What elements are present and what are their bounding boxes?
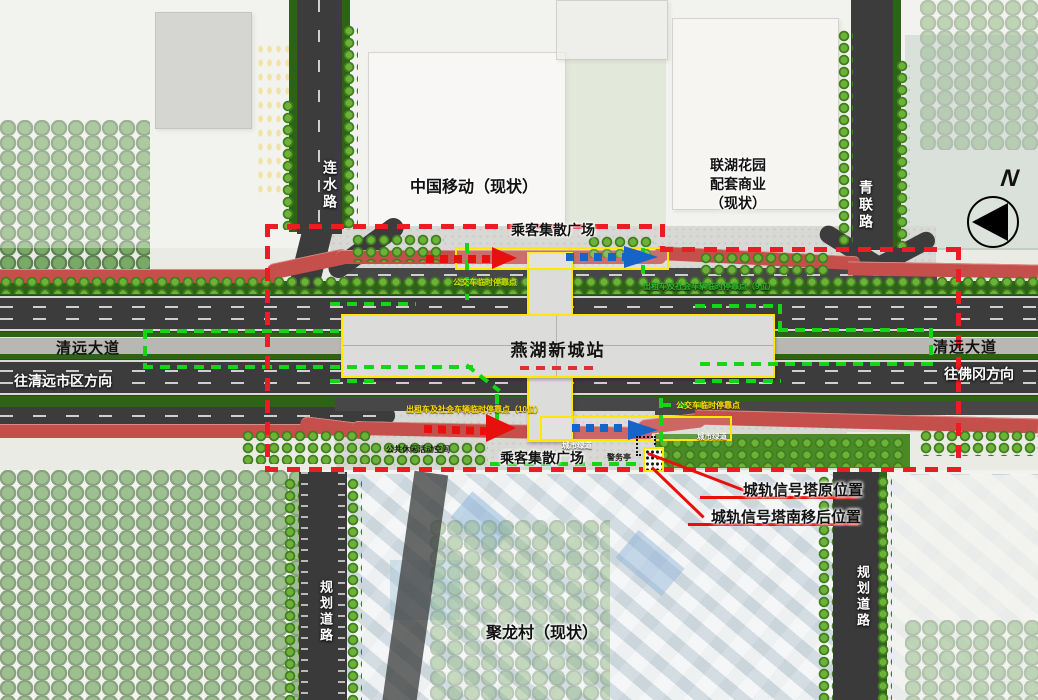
compass-circle [967, 196, 1019, 248]
direction-west-label: 往清远市区方向 [14, 371, 112, 391]
site-plan-map: 燕湖新城站 乘客集散广场 中国移动（现状） 联湖花园 配套商业 （现状） 连水路… [0, 0, 1038, 700]
police-kiosk-label: 警务亭 [607, 452, 631, 463]
signal-tower-relocated-label: 城轨信号塔南移后位置 [711, 506, 861, 527]
bus-flow-arrow-north-head [624, 246, 658, 268]
taxi-flow-arrow-north-head [492, 247, 517, 269]
route-green-e-bottom [700, 362, 933, 366]
building-china-mobile-label: 中国移动（现状） [410, 173, 538, 197]
planned-sw-trees-west [284, 478, 299, 700]
boundary-left [265, 224, 270, 472]
boundary-top-west [265, 224, 665, 229]
qinglian-road-label: 青联路 [856, 180, 876, 231]
route-green-n1 [465, 243, 469, 300]
compass-icon: N [965, 165, 1035, 250]
edge-line [0, 296, 1038, 298]
station-name-label: 燕湖新城站 [343, 336, 773, 361]
street-trees-lianshui-east [343, 25, 358, 230]
lane-dashes [0, 306, 1038, 308]
direction-east-label: 往佛冈方向 [944, 364, 1014, 384]
greenway-label-west: 城市绿道 [562, 440, 592, 451]
taxi-flow-arrow-south-head [486, 414, 516, 442]
boundary-top-east [660, 247, 960, 252]
planned-sw-trees-east [347, 478, 362, 700]
route-green-station-top-w [330, 302, 416, 306]
lianshui-road-label: 连水路 [320, 160, 340, 211]
plaza-north-label: 乘客集散广场 [511, 220, 595, 240]
greenway-label-east: 城市绿道 [697, 431, 727, 442]
street-trees-lianshui-west [282, 100, 296, 230]
edge-line [0, 393, 1038, 395]
parking-ticks [301, 472, 308, 700]
taxi-stop-north-label: 出租车及社会车辆临时停靠点（9位） [643, 281, 775, 292]
route-green-w-top [143, 329, 339, 333]
compass-needle [972, 203, 1008, 241]
leisure-space-label: 公共休闲活动空间 [386, 444, 450, 455]
street-trees-north-row [0, 276, 1038, 294]
taxi-stop-south-label: 出租车及社会车辆临时停靠点（10位） [406, 404, 543, 415]
building-lianhu-label: 联湖花园 配套商业 （现状） [700, 156, 776, 213]
bus-stop-south-label: 公交车临时停靠点 [676, 400, 740, 411]
julong-village-label: 聚龙村（现状） [486, 619, 598, 643]
taxi-flow-arrow-north-trail [426, 255, 492, 263]
plaza-south-trees-4 [920, 430, 1038, 456]
plaza-south-trees-1 [242, 430, 370, 464]
planned-se-trees-east [877, 476, 892, 700]
route-green-station-bot-e [695, 379, 781, 383]
lane-dashes [0, 415, 395, 417]
plaza-south-label: 乘客集散广场 [500, 448, 584, 468]
street-trees-qinglian-east [896, 60, 910, 248]
boundary-bottom [265, 467, 961, 472]
planned-road-sw-label: 规划道路 [316, 580, 335, 644]
qingyuan-avenue-east-label: 清远大道 [933, 336, 997, 357]
route-green-e-top [778, 328, 933, 332]
qingyuan-avenue-west-label: 清远大道 [56, 337, 120, 358]
planned-road-se-label: 规划道路 [853, 565, 872, 629]
parking-ticks [338, 472, 345, 700]
bus-flow-arrow-south-trail [572, 424, 628, 432]
station-red-dashes [520, 366, 594, 370]
street-trees-qinglian-west [838, 30, 853, 248]
plaza-south-trees-3 [658, 437, 906, 467]
bus-stop-north-label: 公交车临时停靠点 [453, 277, 517, 288]
route-green-station-bot-w [330, 379, 380, 383]
route-green-w-left [143, 329, 147, 369]
bus-flow-arrow-north-trail [566, 253, 624, 261]
plaza-north-trees-3 [700, 252, 830, 276]
route-green-station-top-e [695, 304, 781, 308]
compass-north-label: N [999, 165, 1020, 193]
boundary-right [956, 247, 961, 472]
lane-dashes [0, 382, 1038, 384]
route-green-w-bottom [143, 365, 473, 369]
signal-tower-original-label: 城轨信号塔原位置 [743, 479, 863, 500]
